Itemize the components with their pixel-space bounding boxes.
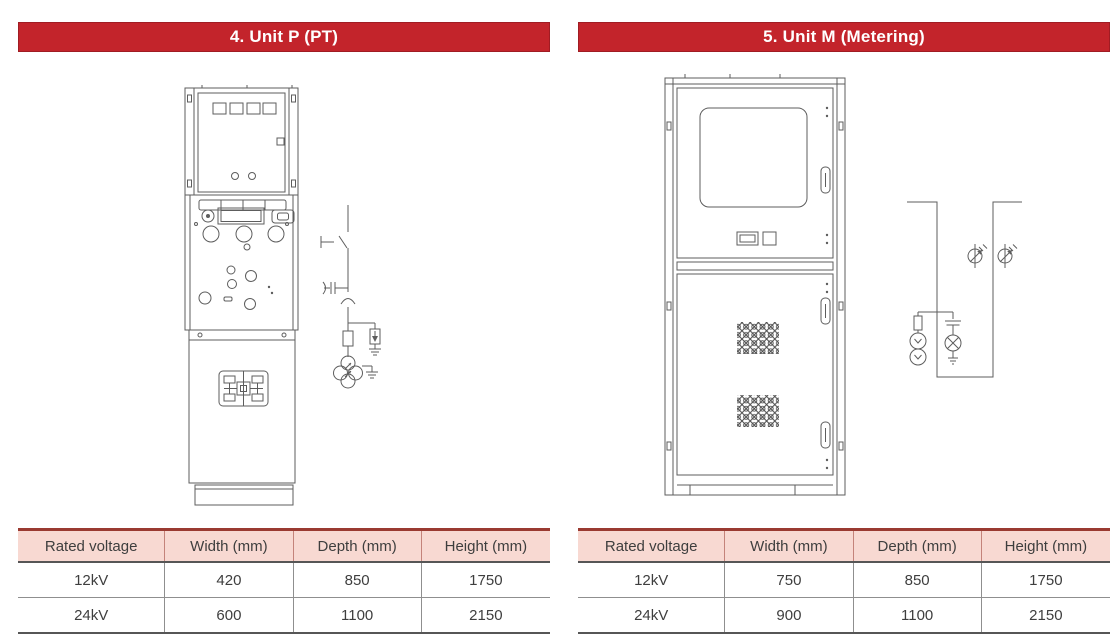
table-header-cell: Height (mm) (421, 530, 550, 563)
unit-m-title-banner: 5. Unit M (Metering) (578, 22, 1110, 52)
table-header-cell: Rated voltage (18, 530, 165, 563)
table-row: 24kV 900 1100 2150 (578, 598, 1110, 634)
unit-m-spec-table: Rated voltage Width (mm) Depth (mm) Heig… (578, 528, 1110, 634)
meter-symbol-icon (998, 244, 1017, 268)
unit-m-drawing-area (578, 52, 1110, 520)
unit-m-wiring-diagram-icon (907, 202, 1022, 377)
table-cell: 750 (725, 562, 853, 598)
table-cell: 1100 (293, 598, 421, 634)
table-header-cell: Depth (mm) (853, 530, 981, 563)
unit-m-section: 5. Unit M (Metering) (578, 22, 1110, 634)
table-cell: 12kV (578, 562, 725, 598)
table-cell: 12kV (18, 562, 165, 598)
table-row: 12kV 420 850 1750 (18, 562, 550, 598)
table-cell: 900 (725, 598, 853, 634)
unit-p-drawing (18, 52, 550, 520)
table-cell: 1100 (853, 598, 981, 634)
table-header-cell: Rated voltage (578, 530, 725, 563)
vent-grille-icon (737, 322, 779, 354)
table-cell: 850 (293, 562, 421, 598)
unit-p-drawing-area (18, 52, 550, 520)
table-header-cell: Depth (mm) (293, 530, 421, 563)
table-row: 12kV 750 850 1750 (578, 562, 1110, 598)
table-cell: 1750 (981, 562, 1110, 598)
table-header-row: Rated voltage Width (mm) Depth (mm) Heig… (18, 530, 550, 563)
table-cell: 850 (853, 562, 981, 598)
vent-grille-icon (219, 371, 268, 406)
unit-m-drawing (578, 52, 1110, 520)
unit-p-cabinet-front-view-icon (185, 85, 298, 505)
table-cell: 1750 (421, 562, 550, 598)
table-cell: 24kV (18, 598, 165, 634)
vent-grille-icon (737, 395, 779, 427)
table-cell: 2150 (421, 598, 550, 634)
unit-p-title-banner: 4. Unit P (PT) (18, 22, 550, 52)
table-header-cell: Width (mm) (725, 530, 853, 563)
table-header-cell: Width (mm) (165, 530, 293, 563)
table-header-cell: Height (mm) (981, 530, 1110, 563)
table-cell: 24kV (578, 598, 725, 634)
table-cell: 2150 (981, 598, 1110, 634)
unit-m-cabinet-front-view-icon (665, 74, 845, 495)
table-row: 24kV 600 1100 2150 (18, 598, 550, 634)
unit-p-single-line-diagram-icon (321, 205, 381, 388)
table-cell: 600 (165, 598, 293, 634)
table-cell: 420 (165, 562, 293, 598)
meter-symbol-icon (968, 244, 987, 268)
section-title: 5. Unit M (Metering) (763, 27, 925, 47)
section-title: 4. Unit P (PT) (230, 27, 338, 47)
unit-p-section: 4. Unit P (PT) (18, 22, 550, 634)
unit-p-spec-table: Rated voltage Width (mm) Depth (mm) Heig… (18, 528, 550, 634)
table-header-row: Rated voltage Width (mm) Depth (mm) Heig… (578, 530, 1110, 563)
